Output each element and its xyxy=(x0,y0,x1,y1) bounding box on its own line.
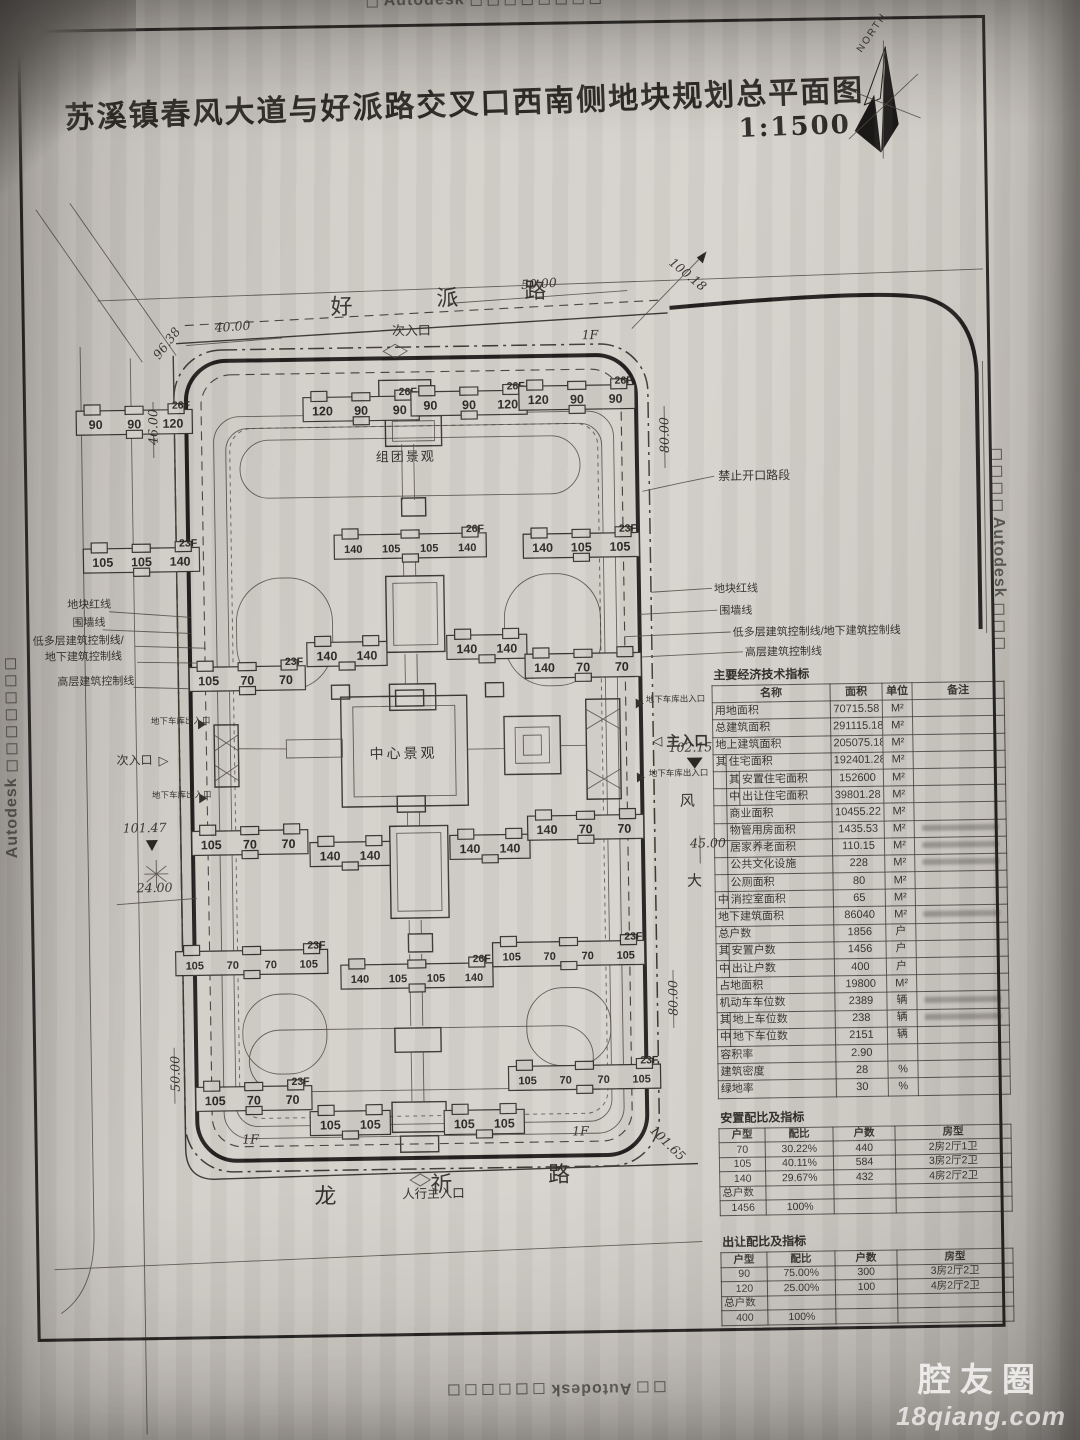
unit-type-label: 105 xyxy=(360,1118,381,1132)
label-plot-redline: 地块红线 xyxy=(67,597,111,612)
watermark-url: 18qiang.com xyxy=(896,1401,1066,1432)
building-footprint: 105105 xyxy=(444,1103,525,1138)
unit-type-label: 140 xyxy=(356,649,377,663)
unit-type-label: 70 xyxy=(265,959,277,971)
no-opening-label: 禁止开口路段 xyxy=(718,467,790,483)
road-name-char: 大 xyxy=(687,872,702,889)
unit-type-label: 70 xyxy=(227,960,239,972)
unit-type-label: 105 xyxy=(518,1075,537,1087)
unit-type-label: 120 xyxy=(162,417,183,431)
building-footprint: 140140 xyxy=(310,835,391,870)
illegible-remark xyxy=(922,841,999,848)
unit-type-label: 105 xyxy=(609,540,630,554)
unit-type-label: 90 xyxy=(462,398,476,412)
unit-type-label: 70 xyxy=(279,673,293,687)
unit-type-label: 70 xyxy=(240,673,254,687)
side-entrance-arrow-icon: ▷ xyxy=(158,753,168,768)
building-footprint: 105105 xyxy=(310,1104,391,1139)
floor-count-label: 23F xyxy=(285,656,304,668)
unit-type-label: 70 xyxy=(559,1075,571,1087)
building-footprint: 1407070 xyxy=(525,646,642,682)
transfer-table-title: 出让配比及指标 xyxy=(722,1229,1012,1251)
unit-type-label: 105 xyxy=(632,1073,651,1085)
building-footprint: 14010510514026F xyxy=(341,953,494,993)
building-footprint: 14010510523F xyxy=(523,522,640,562)
unit-type-label: 105 xyxy=(201,838,222,852)
main-table-title: 主要经济技术指标 xyxy=(713,662,1003,684)
floor-count-label: 26F xyxy=(466,523,485,535)
unit-type-label: 70 xyxy=(579,822,593,836)
central-axis xyxy=(209,377,627,1155)
garage-entrance-label: 地下车库出入口 xyxy=(151,715,211,726)
building-footprint: 10510514023F xyxy=(83,537,200,577)
side-entrance-label: 次入口 xyxy=(116,753,152,768)
building-footprint: 140140 xyxy=(307,635,388,670)
unit-type-label: 140 xyxy=(496,641,517,655)
unit-type-label: 70 xyxy=(576,660,590,674)
unit-type-label: 140 xyxy=(360,849,381,863)
building-footprint: 909012026F xyxy=(76,399,193,439)
center-landscape-label: 中心景观 xyxy=(369,745,437,762)
unit-type-label: 140 xyxy=(459,842,480,856)
unit-type-label: 105 xyxy=(616,950,635,962)
floor-count-label: 26F xyxy=(473,953,492,965)
unit-type-label: 90 xyxy=(609,392,623,406)
unit-type-label: 70 xyxy=(286,1093,300,1107)
unit-type-label: 140 xyxy=(499,841,520,855)
building-footprint: 105707010523F xyxy=(508,1054,661,1094)
unit-type-label: 70 xyxy=(597,1074,609,1086)
road-name-char: 派 xyxy=(436,285,458,310)
unit-type-label: 105 xyxy=(454,1117,475,1131)
unit-type-label: 105 xyxy=(92,556,113,570)
dimension-label: 101.47 xyxy=(123,820,167,836)
dimension-label: 46.00 xyxy=(145,409,161,446)
dimension-label: 40.00 xyxy=(213,318,251,335)
sub-entrance-top-label: 次入口 xyxy=(392,323,431,339)
garage-entrance-label: 地下车库出入口 xyxy=(646,693,706,704)
unit-type-label: 70 xyxy=(581,950,593,962)
building-footprint: 1057070 xyxy=(192,824,309,860)
unit-type-label: 90 xyxy=(570,392,584,406)
resettle-table-title: 安置配比及指标 xyxy=(720,1104,1010,1126)
floor-count-label: 26F xyxy=(172,399,191,411)
unit-type-label: 70 xyxy=(615,660,629,674)
unit-type-label: 105 xyxy=(198,674,219,688)
unit-type-label: 90 xyxy=(89,418,103,432)
dimension-label: 50.00 xyxy=(521,275,558,292)
unit-type-label: 140 xyxy=(316,649,337,663)
dimension-label: 80.00 xyxy=(656,417,672,453)
unit-type-label: 140 xyxy=(320,849,341,863)
road-name-char: 风 xyxy=(680,793,695,810)
dimension-label: 1F xyxy=(582,327,600,342)
label-underground-control: 地下建筑控制线 xyxy=(45,649,122,664)
north-arrow: NORTH xyxy=(841,10,921,159)
unit-type-label: 105 xyxy=(300,959,319,971)
illegible-remark xyxy=(922,824,999,831)
main-entrance-arrow-icon: ◁ xyxy=(652,733,662,748)
floor-count-label: 23F xyxy=(179,537,198,549)
internal-roads xyxy=(213,411,624,1139)
label-wall-line-r: 围墙线 xyxy=(719,603,752,618)
road-name-char: 龙 xyxy=(314,1183,336,1208)
building-footprint: 105707010523F xyxy=(175,939,328,979)
unit-type-label: 120 xyxy=(528,393,549,407)
building-footprint: 140140 xyxy=(450,828,531,863)
unit-type-label: 105 xyxy=(494,1116,515,1130)
unit-type-label: 90 xyxy=(127,417,141,431)
unit-type-label: 120 xyxy=(497,397,518,411)
unit-type-label: 140 xyxy=(465,972,484,984)
floor-count-label: 23F xyxy=(291,1076,310,1088)
unit-type-label: 140 xyxy=(456,642,477,656)
watermark: 腔友圈 18qiang.com xyxy=(896,1353,1066,1432)
building-footprint: 1407070 xyxy=(527,808,644,844)
dimension-label: 1F xyxy=(572,1123,590,1138)
unit-type-label: 140 xyxy=(170,554,191,568)
building-footprint: 105707010523F xyxy=(492,930,645,970)
label-highrise-control-r: 高层建筑控制线 xyxy=(745,644,822,659)
label-control-lines-r: 低多层建筑控制线/地下建筑控制线 xyxy=(733,622,901,639)
building-footprint: 120909026F xyxy=(303,386,420,426)
site-plan-photo: Autodesk Autodesk Autodesk Autodesk 苏溪镇春… xyxy=(0,0,1080,1440)
dimension-label: 101.65 xyxy=(647,1122,689,1163)
unit-type-label: 105 xyxy=(427,973,446,985)
illegible-remark xyxy=(922,858,999,865)
floor-count-label: 23F xyxy=(624,930,643,942)
building-footprint: 105707023F xyxy=(189,656,306,696)
economic-indicator-tables: 主要经济技术指标 名称面积单位备注用地面积70715.58M²总建筑面积2911… xyxy=(711,662,1013,1327)
dimension-label: 80.00 xyxy=(665,980,681,1016)
unit-type-label: 120 xyxy=(312,404,333,418)
unit-type-label: 70 xyxy=(617,822,631,836)
dimension-label: 1F xyxy=(242,1131,260,1146)
floor-count-label: 26F xyxy=(614,374,633,386)
road-name-char: 祈 xyxy=(430,1171,452,1196)
unit-type-label: 70 xyxy=(247,1093,261,1107)
transfer-ratio-table: 户型配比户数房型9075.00%3003房2厅2卫12025.00%1004房2… xyxy=(720,1248,1014,1327)
floor-count-label: 23F xyxy=(619,522,638,534)
illegible-remark xyxy=(923,910,1000,917)
drawing-sheet: Autodesk Autodesk Autodesk Autodesk 苏溪镇春… xyxy=(0,0,1080,1440)
road-name-char: 好 xyxy=(330,294,352,319)
unit-type-label: 140 xyxy=(344,544,363,556)
unit-type-label: 90 xyxy=(423,399,437,413)
unit-type-label: 90 xyxy=(393,403,407,417)
unit-type-label: 140 xyxy=(537,823,558,837)
building-footprint: 14010510514026F xyxy=(334,523,487,563)
illegible-remark xyxy=(925,996,1002,1003)
building-footprint: 120909026F xyxy=(519,374,636,414)
illegible-remark xyxy=(925,1013,1002,1020)
unit-type-label: 105 xyxy=(571,540,592,554)
unit-type-label: 140 xyxy=(532,541,553,555)
label-wall-line: 围墙线 xyxy=(72,615,105,630)
label-lowrise-control: 低多层建筑控制线/ xyxy=(33,633,125,648)
unit-type-label: 90 xyxy=(354,404,368,418)
unit-type-label: 105 xyxy=(420,543,439,555)
unit-type-label: 70 xyxy=(544,951,556,963)
floor-count-label: 23F xyxy=(640,1054,659,1066)
unit-type-label: 105 xyxy=(320,1118,341,1132)
unit-type-label: 105 xyxy=(389,973,408,985)
resettle-ratio-table: 户型配比户数房型7030.22%4402房2厅1卫10540.11%5843房2… xyxy=(718,1123,1012,1216)
label-plot-redline-r: 地块红线 xyxy=(714,581,758,596)
unit-type-label: 140 xyxy=(351,974,370,986)
road-name-char: 路 xyxy=(548,1162,570,1187)
building-footprint: 105707023F xyxy=(196,1076,313,1116)
unit-type-label: 70 xyxy=(282,837,296,851)
dimension-label: 24.00 xyxy=(136,880,173,896)
unit-type-label: 140 xyxy=(458,542,477,554)
unit-type-label: 105 xyxy=(502,951,521,963)
watermark-site-name: 腔友圈 xyxy=(896,1353,1066,1401)
main-indicators-table: 名称面积单位备注用地面积70715.58M²总建筑面积291115.18M²地上… xyxy=(711,681,1010,1099)
building-footprint: 909012026F xyxy=(411,380,528,420)
cluster-landscape-label: 组团景观 xyxy=(376,449,436,465)
unit-type-label: 105 xyxy=(186,960,205,972)
dimension-label: 50.00 xyxy=(167,1056,183,1092)
unit-type-label: 105 xyxy=(131,555,152,569)
building-footprint: 140140 xyxy=(447,628,528,663)
unit-type-label: 70 xyxy=(243,837,257,851)
unit-type-label: 105 xyxy=(205,1094,226,1108)
garage-entrance-label: 地下车库出入口 xyxy=(152,789,212,800)
label-highrise-control: 高层建筑控制线 xyxy=(57,673,134,688)
unit-type-label: 105 xyxy=(382,543,401,555)
floor-count-label: 23F xyxy=(307,939,326,951)
unit-type-label: 140 xyxy=(534,661,555,675)
right-leader-labels: 地块红线 围墙线 低多层建筑控制线/地下建筑控制线 高层建筑控制线 xyxy=(600,578,901,661)
garage-entrance-label: 地下车库出入口 xyxy=(649,767,709,778)
north-label: NORTH xyxy=(855,11,890,55)
dimension-label: 102.15 xyxy=(668,739,712,755)
